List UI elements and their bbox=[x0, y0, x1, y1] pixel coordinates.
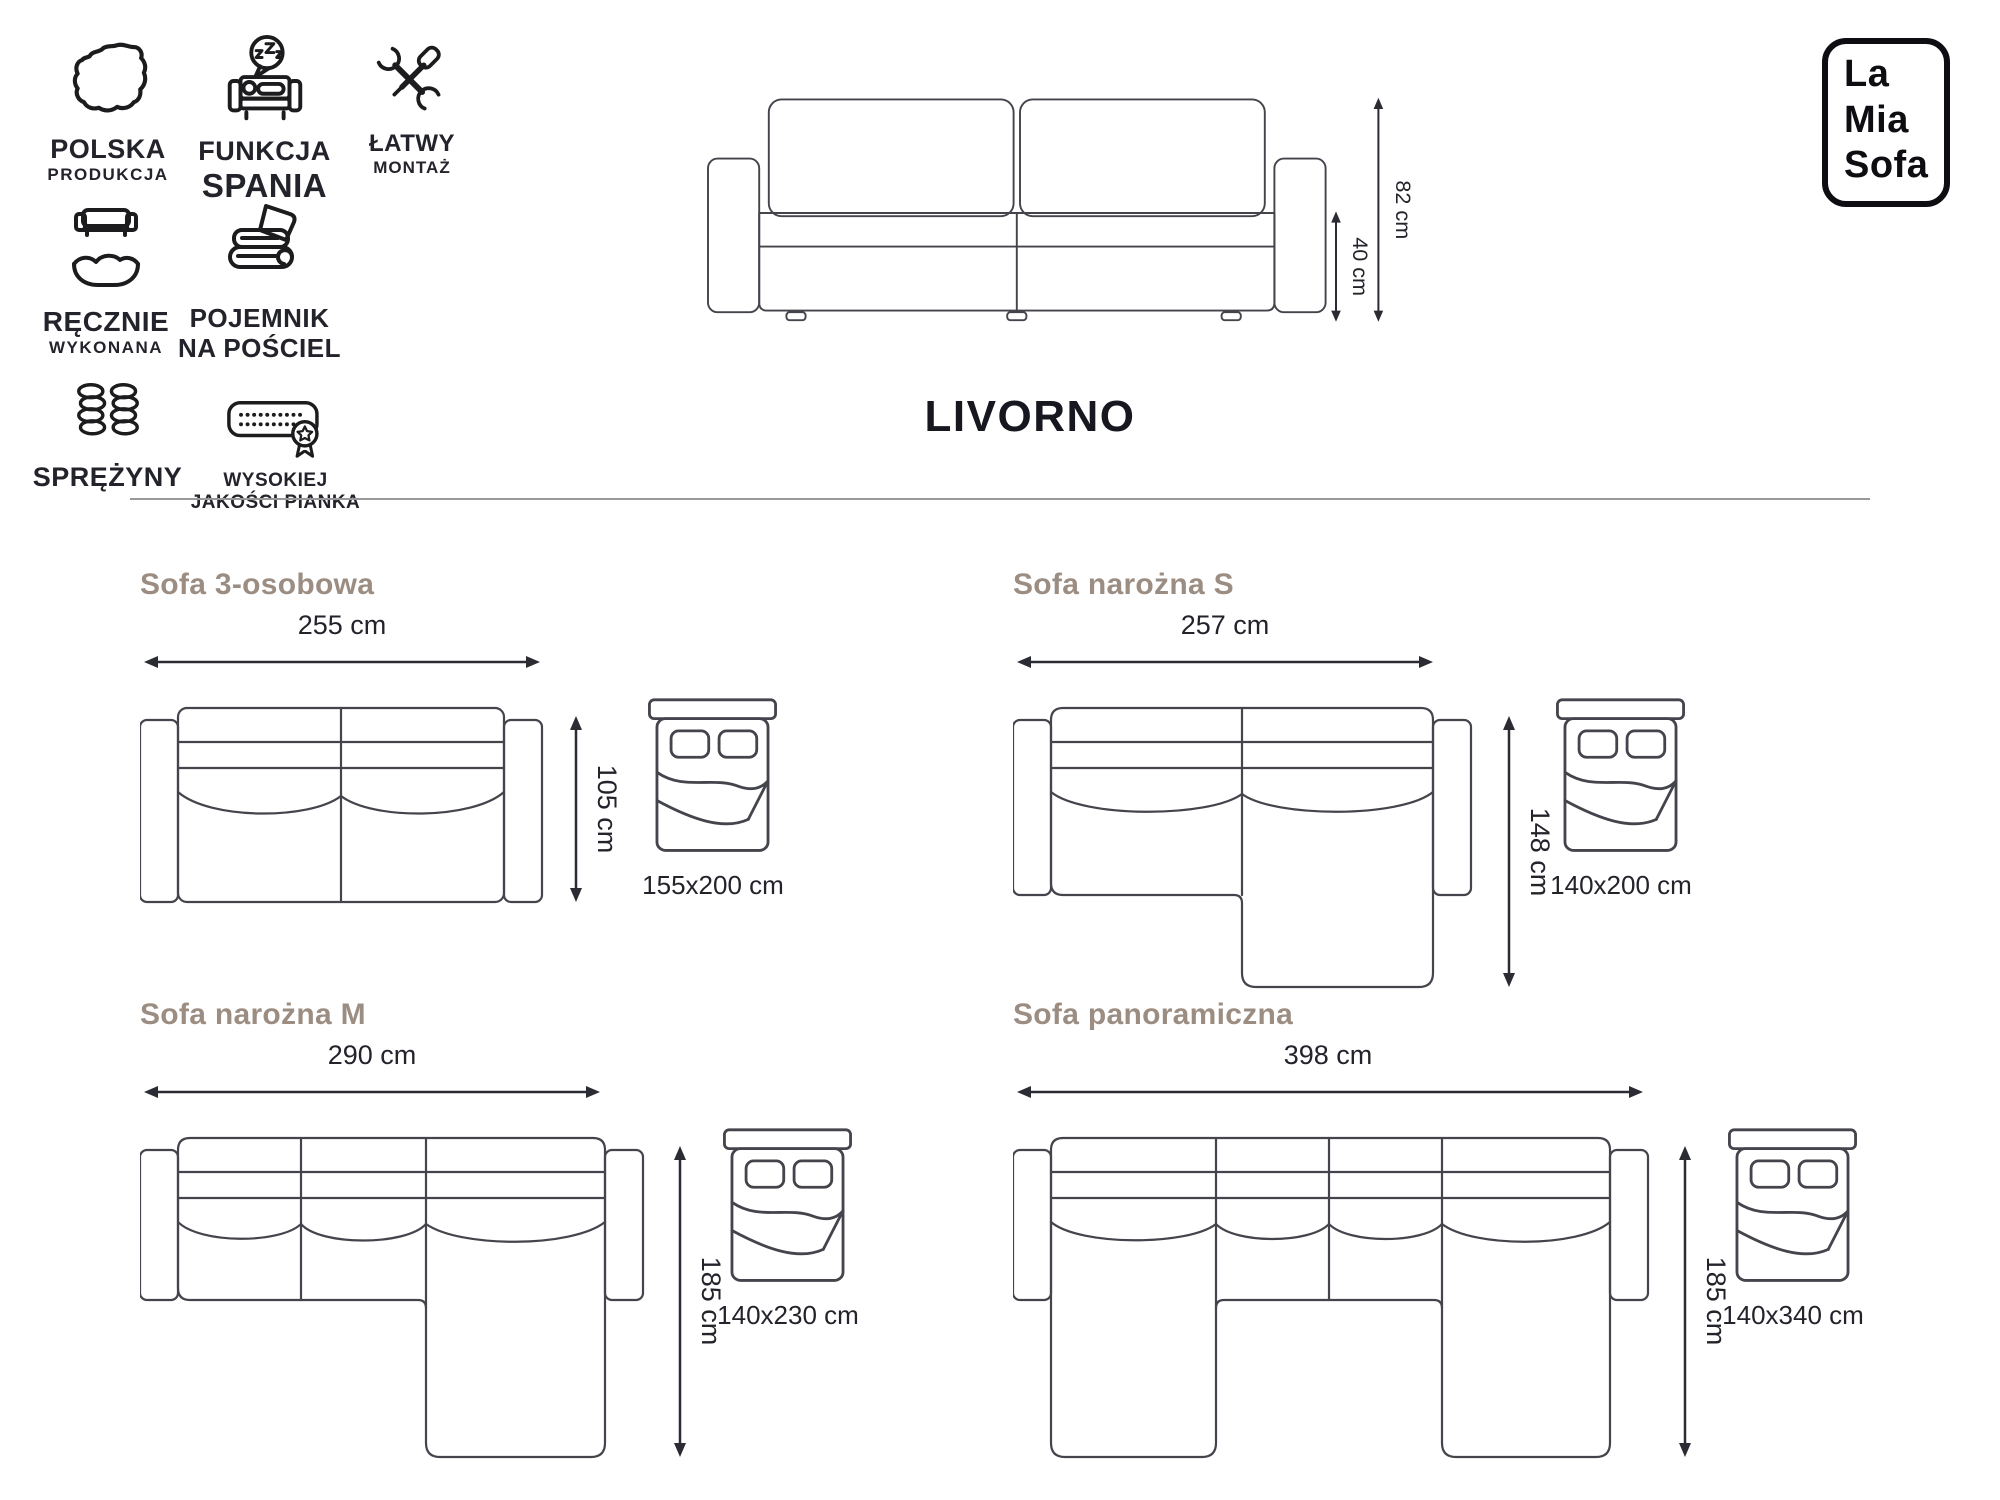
sofa-top-view bbox=[140, 708, 542, 902]
total-height-dimension: 82 cm bbox=[1374, 98, 1416, 322]
sleep-function-icon bbox=[216, 32, 314, 130]
bed-icon bbox=[649, 700, 775, 851]
easy-assembly-icon bbox=[370, 40, 454, 124]
feature-label: RĘCZNIE bbox=[43, 306, 169, 338]
bed-size-label: 140x200 cm bbox=[1550, 870, 1692, 900]
bed-size-label: 140x340 cm bbox=[1722, 1300, 1864, 1330]
feature-sublabel: JAKOŚCI PIANKA bbox=[191, 492, 361, 514]
feature-wysokiej-jakosci-pianka: WYSOKIEJ JAKOŚCI PIANKA bbox=[188, 382, 363, 514]
feature-sprezyny: SPRĘŻYNY bbox=[40, 378, 175, 493]
depth-dimension: 148 cm bbox=[1503, 716, 1555, 987]
feature-polska-produkcja: POLSKA PRODUKCJA bbox=[38, 36, 178, 185]
feature-funkcja-spania: FUNKCJA SPANIA bbox=[192, 32, 337, 205]
brand-logo: La Mia Sofa bbox=[1822, 38, 1950, 207]
width-label: 255 cm bbox=[298, 612, 387, 640]
feature-latwy-montaz: ŁATWY MONTAŻ bbox=[352, 40, 472, 177]
depth-dimension: 105 cm bbox=[570, 716, 622, 902]
feature-sublabel: PRODUKCJA bbox=[47, 165, 168, 185]
variant-drawing-sofa-3-osobowa: 255 cm 105 cm 155x200 cm bbox=[140, 612, 920, 922]
feature-sublabel: WYKONANA bbox=[49, 338, 163, 358]
width-dimension bbox=[144, 656, 540, 668]
feature-recznie-wykonana: RĘCZNIE WYKONANA bbox=[36, 200, 176, 358]
depth-label: 105 cm bbox=[592, 765, 622, 854]
sofa-top-view bbox=[140, 1138, 643, 1457]
variant-title-sofa-narozna-s: Sofa narożna S bbox=[1013, 568, 1234, 602]
sofa-front-view-drawing: 40 cm 82 cm bbox=[700, 85, 1420, 333]
width-label: 290 cm bbox=[328, 1042, 417, 1070]
variant-drawing-sofa-narozna-s: 257 cm 148 cm 140x200 cm bbox=[1013, 612, 1833, 1012]
width-dimension bbox=[144, 1086, 600, 1098]
variant-drawing-sofa-panoramiczna: 398 cm 185 cm 140x340 cm bbox=[1013, 1042, 1933, 1472]
variant-drawing-sofa-narozna-m: 290 cm 185 cm 140x230 cm bbox=[140, 1042, 980, 1472]
feature-pojemnik-na-posciel: POJEMNIK NA POŚCIEL bbox=[182, 198, 337, 364]
width-dimension bbox=[1017, 1086, 1643, 1098]
product-spec-sheet: POLSKA PRODUKCJA FUNKCJA SPANIA bbox=[0, 0, 2000, 1500]
width-label: 398 cm bbox=[1284, 1042, 1373, 1070]
logo-line: Mia bbox=[1844, 98, 1928, 144]
feature-sublabel: MONTAŻ bbox=[373, 158, 450, 178]
handmade-icon bbox=[56, 200, 156, 300]
total-height-label: 82 cm bbox=[1391, 180, 1416, 239]
feature-label: FUNKCJA bbox=[198, 136, 331, 167]
springs-icon bbox=[65, 378, 151, 456]
feature-label: WYSOKIEJ bbox=[223, 470, 327, 492]
sofa-top-view bbox=[1013, 708, 1471, 987]
bed-icon bbox=[724, 1130, 850, 1281]
bedding-storage-icon bbox=[210, 198, 310, 298]
variant-title-sofa-3-osobowa: Sofa 3-osobowa bbox=[140, 568, 374, 602]
foam-quality-icon bbox=[208, 382, 343, 464]
feature-label: SPRĘŻYNY bbox=[33, 462, 183, 493]
sofa-top-view bbox=[1013, 1138, 1648, 1457]
feature-label: POLSKA bbox=[50, 134, 166, 165]
variant-title-sofa-narozna-m: Sofa narożna M bbox=[140, 998, 366, 1032]
bed-icon bbox=[1557, 700, 1683, 851]
feature-label: POJEMNIK bbox=[190, 304, 330, 334]
seat-height-label: 40 cm bbox=[1348, 237, 1373, 296]
feature-sublabel: NA POŚCIEL bbox=[178, 334, 341, 364]
section-divider bbox=[130, 498, 1870, 500]
bed-size-label: 155x200 cm bbox=[642, 870, 784, 900]
variant-title-sofa-panoramiczna: Sofa panoramiczna bbox=[1013, 998, 1293, 1032]
logo-line: La bbox=[1844, 52, 1928, 98]
bed-icon bbox=[1729, 1130, 1855, 1281]
seat-height-dimension: 40 cm bbox=[1331, 211, 1373, 321]
width-dimension bbox=[1017, 656, 1433, 668]
feature-label: ŁATWY bbox=[369, 130, 455, 158]
logo-line: Sofa bbox=[1844, 143, 1928, 189]
bed-size-label: 140x230 cm bbox=[717, 1300, 859, 1330]
poland-map-icon bbox=[62, 36, 154, 128]
width-label: 257 cm bbox=[1181, 612, 1270, 640]
product-title: LIVORNO bbox=[730, 392, 1330, 442]
